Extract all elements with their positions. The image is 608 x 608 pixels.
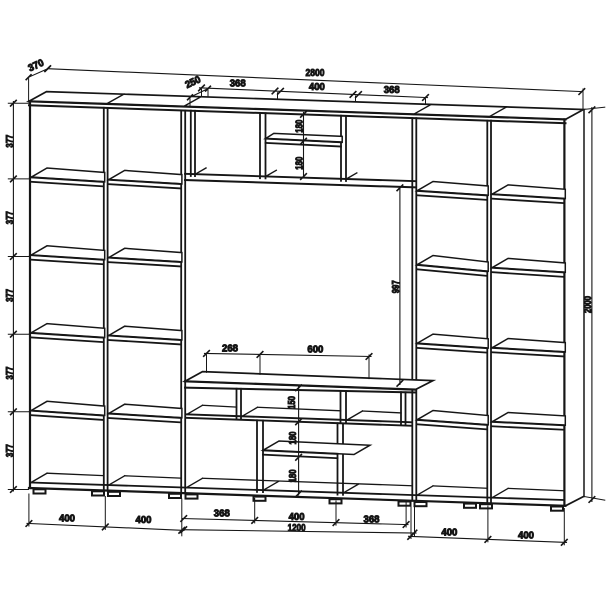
svg-text:400: 400 xyxy=(309,82,325,93)
svg-text:180: 180 xyxy=(294,156,305,169)
svg-text:2000: 2000 xyxy=(583,296,594,313)
svg-text:377: 377 xyxy=(5,211,16,224)
svg-text:400: 400 xyxy=(441,527,457,538)
svg-text:400: 400 xyxy=(136,515,152,526)
svg-text:400: 400 xyxy=(289,512,305,523)
svg-text:997: 997 xyxy=(391,280,402,293)
svg-text:377: 377 xyxy=(5,289,16,302)
svg-text:368: 368 xyxy=(230,78,246,89)
svg-text:368: 368 xyxy=(384,85,400,96)
svg-text:600: 600 xyxy=(307,344,323,355)
svg-text:377: 377 xyxy=(5,134,16,147)
svg-text:1200: 1200 xyxy=(288,523,306,534)
svg-text:400: 400 xyxy=(518,530,534,541)
svg-text:400: 400 xyxy=(59,514,75,525)
svg-text:268: 268 xyxy=(222,343,238,354)
svg-text:2800: 2800 xyxy=(306,68,325,79)
svg-text:368: 368 xyxy=(364,514,380,525)
svg-text:180: 180 xyxy=(288,431,299,444)
svg-text:150: 150 xyxy=(287,396,298,409)
svg-text:368: 368 xyxy=(214,509,230,520)
svg-text:377: 377 xyxy=(5,444,16,457)
svg-text:180: 180 xyxy=(288,469,299,482)
svg-text:180: 180 xyxy=(294,119,305,132)
svg-text:377: 377 xyxy=(5,366,16,379)
